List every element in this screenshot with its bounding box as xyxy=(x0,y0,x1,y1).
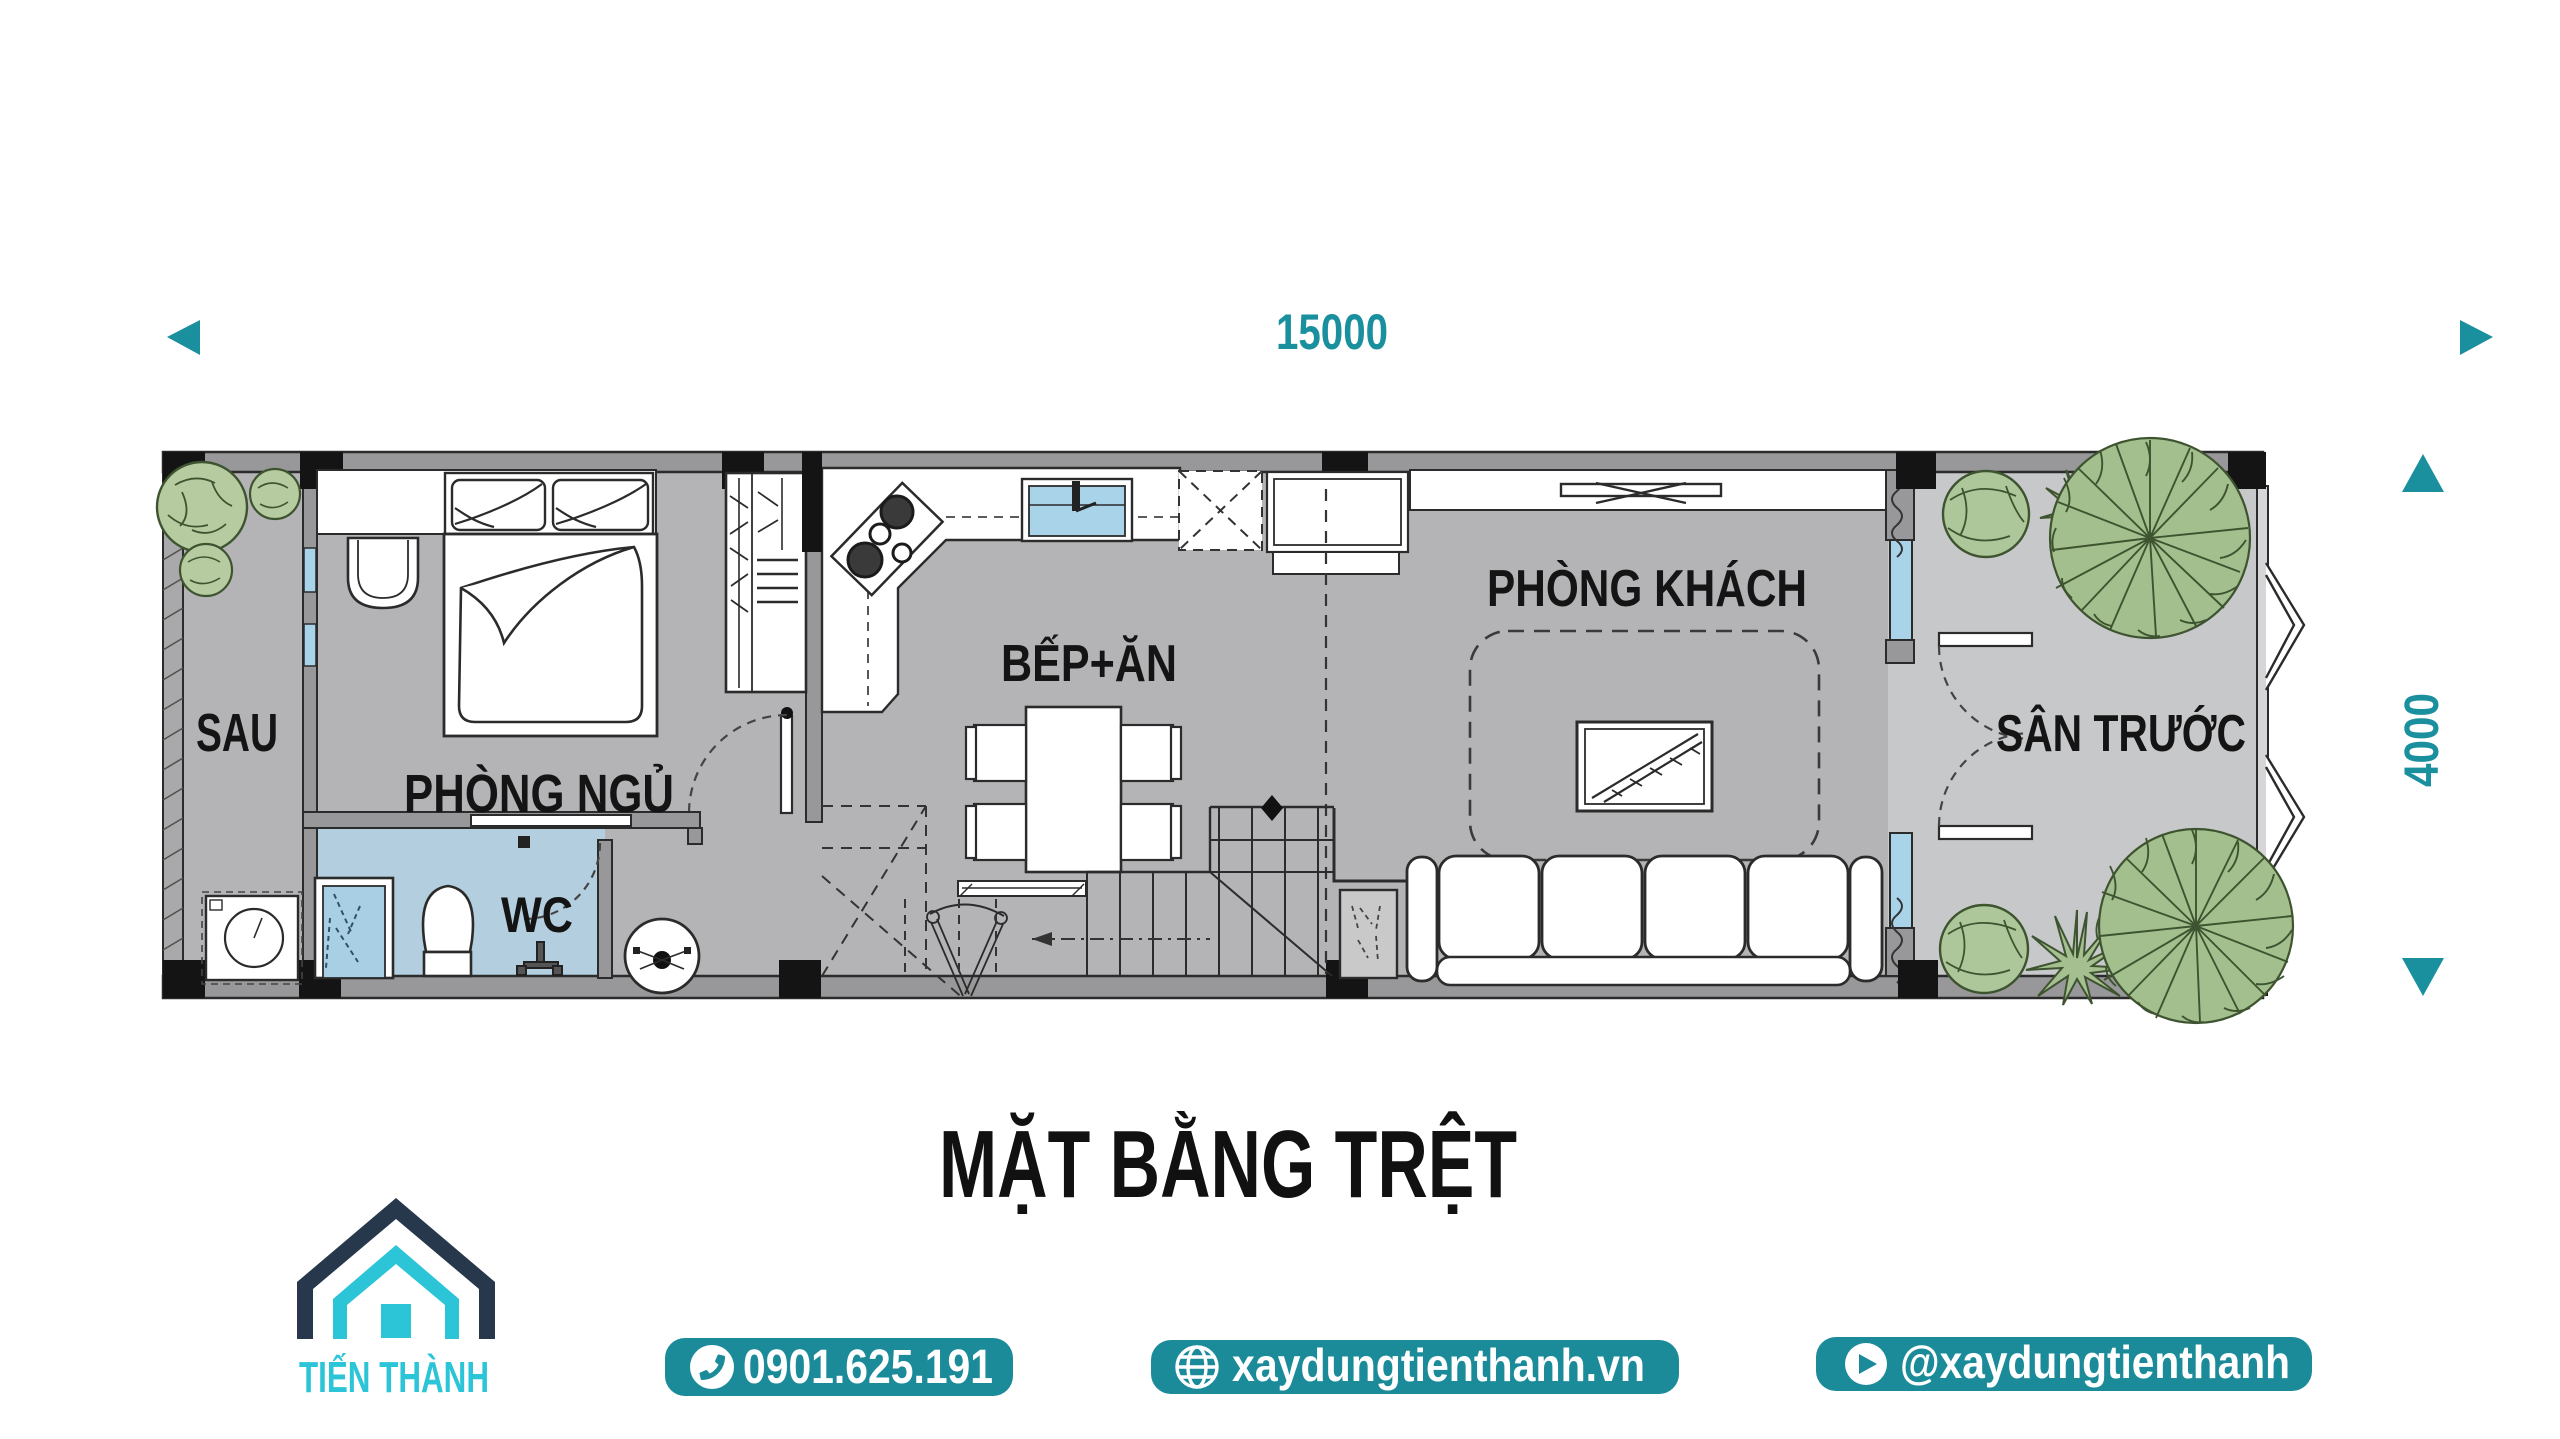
svg-text:PHÒNG NGỦ: PHÒNG NGỦ xyxy=(404,764,674,824)
svg-text:4000: 4000 xyxy=(2396,693,2449,787)
svg-text:TIẾN THÀNH: TIẾN THÀNH xyxy=(299,1352,489,1402)
svg-text:PHÒNG KHÁCH: PHÒNG KHÁCH xyxy=(1487,560,1807,618)
svg-text:MẶT BẰNG TRỆT: MẶT BẰNG TRỆT xyxy=(939,1110,1517,1218)
svg-text:15000: 15000 xyxy=(1276,304,1388,360)
svg-text:WC: WC xyxy=(501,887,573,943)
svg-text:xaydungtienthanh.vn: xaydungtienthanh.vn xyxy=(1232,1339,1645,1391)
svg-text:0901.625.191: 0901.625.191 xyxy=(743,1341,993,1394)
svg-text:@xaydungtienthanh: @xaydungtienthanh xyxy=(1900,1336,2290,1388)
svg-text:SAU: SAU xyxy=(196,703,278,763)
svg-text:SÂN TRƯỚC: SÂN TRƯỚC xyxy=(1996,704,2246,763)
svg-text:BẾP+ĂN: BẾP+ĂN xyxy=(1001,634,1177,693)
